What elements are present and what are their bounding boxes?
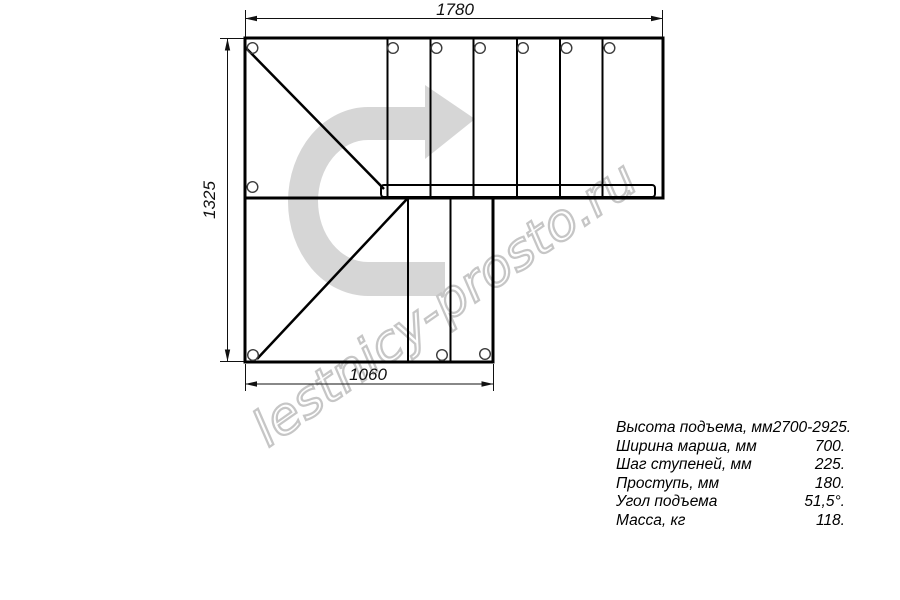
spec-label: Угол подъема [616,493,717,512]
spec-label: Проступь, мм [616,475,719,494]
spec-value: 51,5°. [804,493,845,512]
spec-label: Масса, кг [616,512,685,531]
spec-row: Проступь, мм 180. [616,475,845,494]
mount-hole [604,43,615,54]
spec-row: Ширина марша, мм 700. [616,438,845,457]
spec-value: 180. [815,475,845,494]
spec-label: Высота подъема, мм [616,419,773,438]
dimension-bottom-label: 1060 [349,365,387,384]
mount-hole [561,43,572,54]
spec-value: 225. [815,456,845,475]
dimension-left [220,39,244,362]
mount-hole [437,350,448,361]
spec-value: 700. [815,438,845,457]
dimension-top-label: 1780 [436,0,474,19]
mount-hole [247,43,258,54]
spec-row: Шаг ступеней, мм 225. [616,456,845,475]
spec-label: Шаг ступеней, мм [616,456,752,475]
spec-value: 118. [816,512,845,531]
spec-table: Высота подъема, мм 2700-2925. Ширина мар… [616,419,845,530]
mount-hole [247,182,258,193]
dimension-left-label: 1325 [200,181,219,219]
mount-hole [475,43,486,54]
spec-row: Высота подъема, мм 2700-2925. [616,419,845,438]
mount-hole [388,43,399,54]
mount-hole [248,350,259,361]
spec-row: Масса, кг 118. [616,512,845,531]
spec-label: Ширина марша, мм [616,438,757,457]
spec-row: Угол подъема 51,5°. [616,493,845,512]
mount-hole [431,43,442,54]
mount-hole [518,43,529,54]
spec-value: 2700-2925. [773,419,851,438]
stair-plan-canvas: lestnicy-prosto.ru [0,0,900,600]
mount-hole [480,349,491,360]
